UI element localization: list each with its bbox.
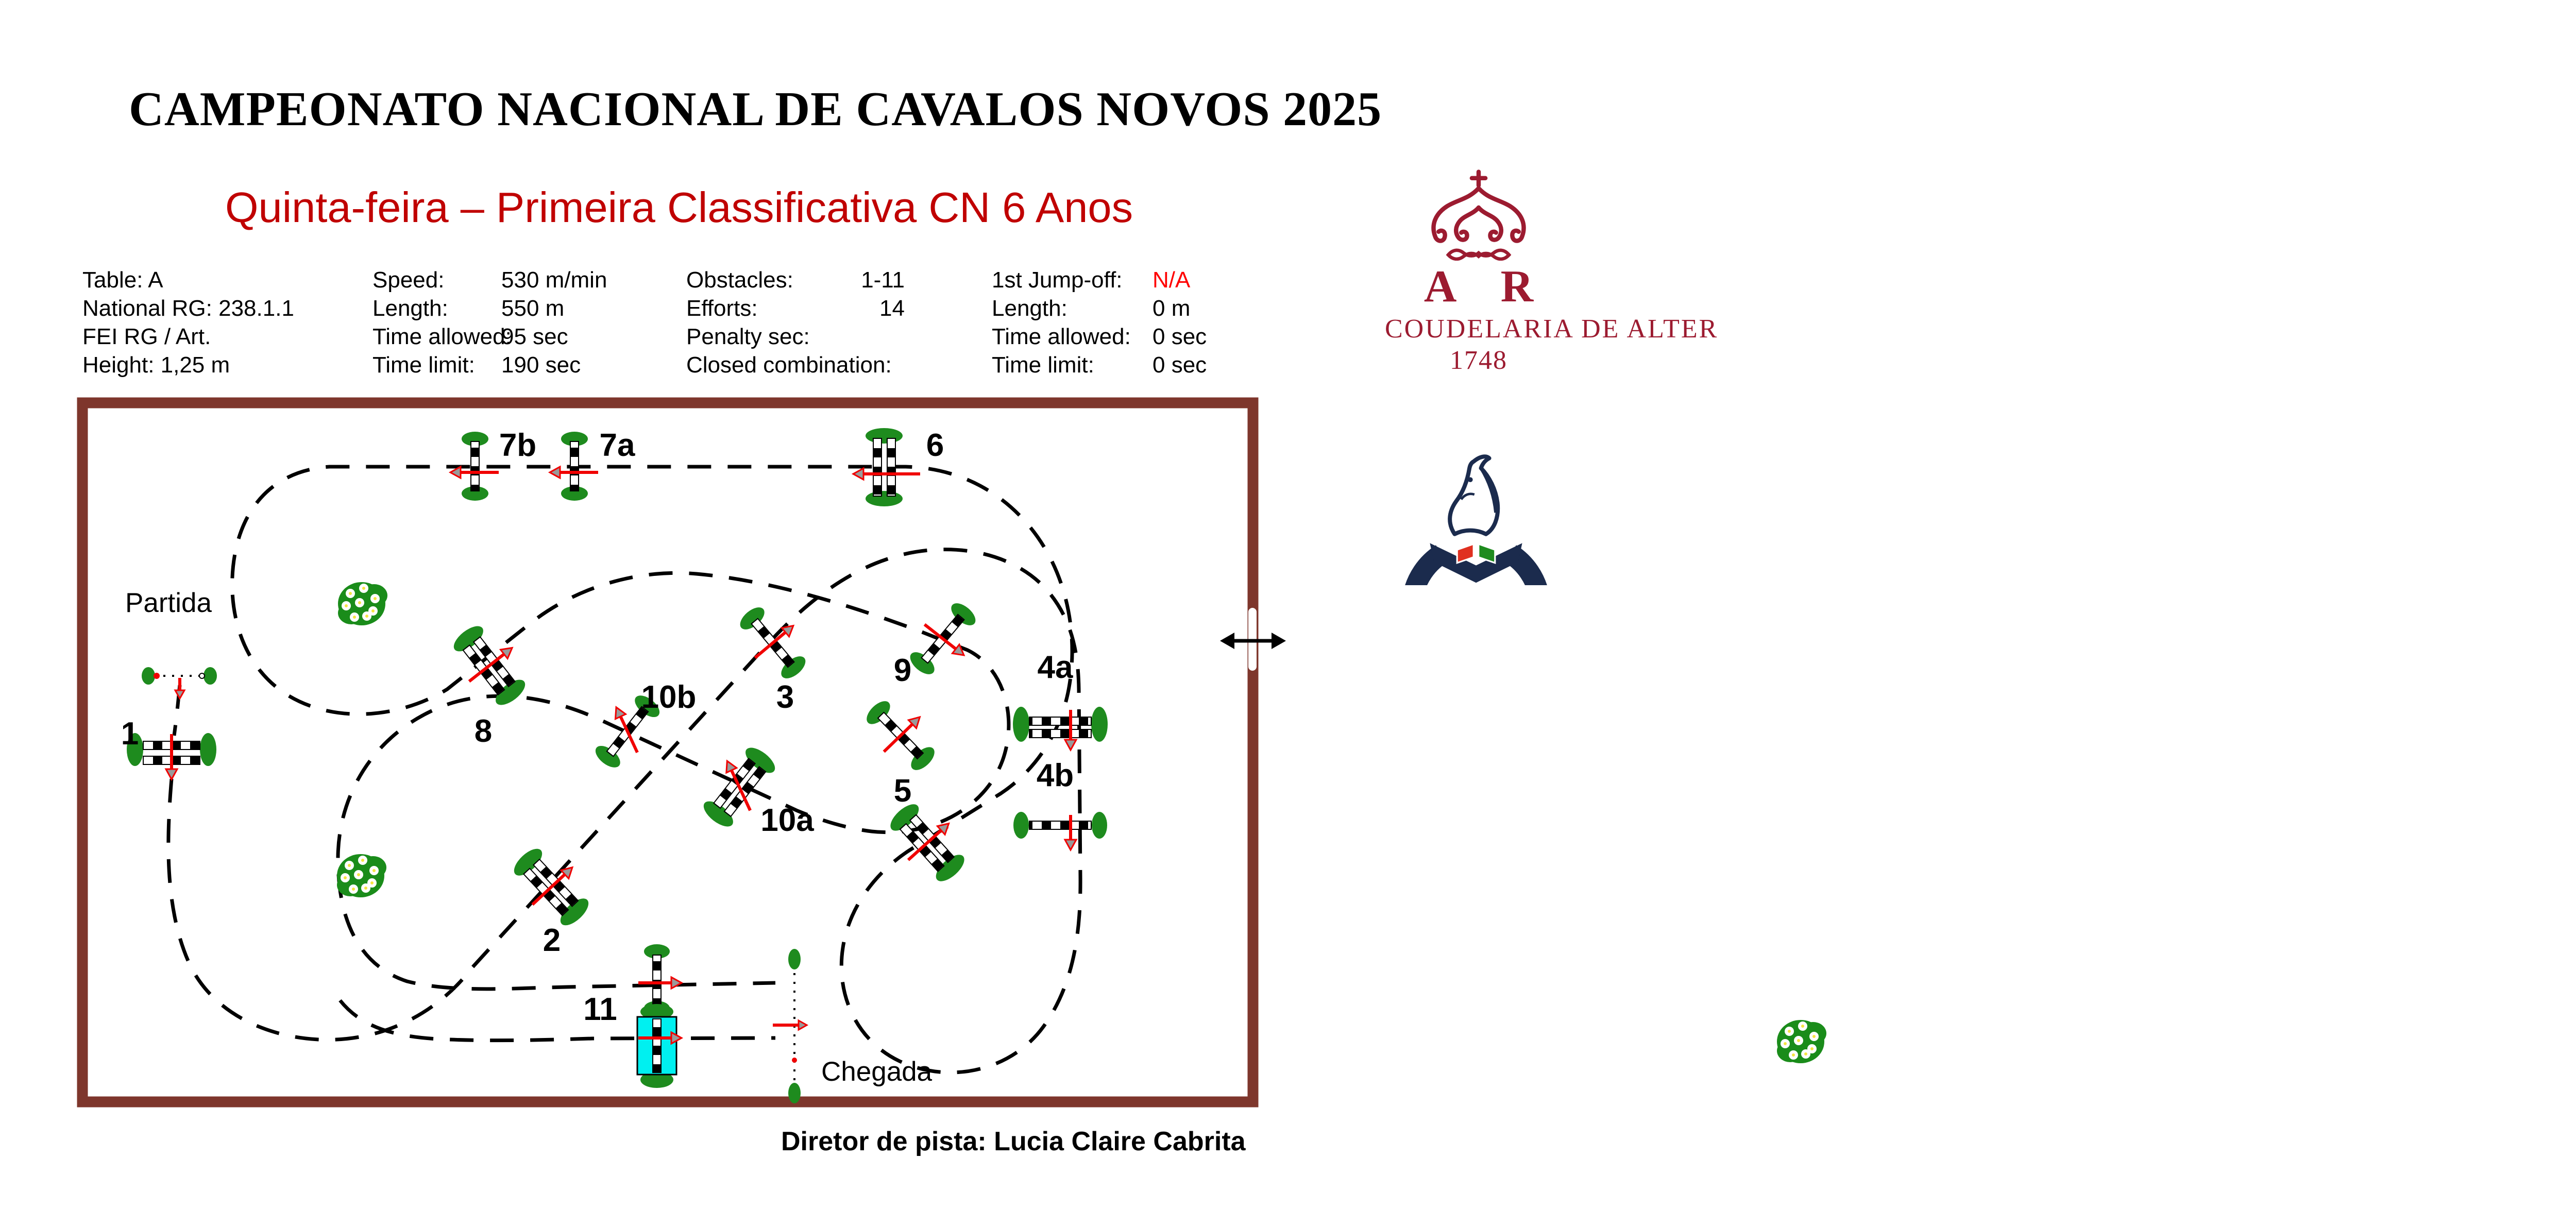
obstacle-3-label: 3 <box>776 679 794 715</box>
water-element <box>637 1004 682 1088</box>
obstacle-4a <box>1013 707 1108 750</box>
obstacle-11-label: 11 <box>583 992 617 1027</box>
obstacle-7a <box>550 432 598 501</box>
obstacle-10a-label: 10a <box>760 803 814 838</box>
flower-bed <box>1777 1020 1826 1063</box>
finish-line <box>773 949 807 1103</box>
obstacle-11 <box>637 944 682 1088</box>
obstacle-7b-label: 7b <box>499 428 536 463</box>
obstacle-3 <box>736 603 809 683</box>
obstacle-4b <box>1013 812 1107 850</box>
start-line <box>142 667 217 699</box>
start-arrow-icon <box>175 678 184 699</box>
start-label: Partida <box>125 588 212 618</box>
obstacle-8-label: 8 <box>474 713 492 749</box>
flower-bed <box>338 582 387 625</box>
obstacle-4b-label: 4b <box>1037 758 1074 793</box>
obstacle-6-label: 6 <box>926 428 944 463</box>
obstacle-7a-label: 7a <box>600 428 635 463</box>
obstacle-2-label: 2 <box>543 923 561 958</box>
finish-label: Chegada <box>821 1057 933 1087</box>
course-director: Diretor de pista: Lucia Claire Cabrita <box>781 1126 1246 1157</box>
obstacle-10b-label: 10b <box>641 679 697 715</box>
course-design-sheet: CAMPEONATO NACIONAL DE CAVALOS NOVOS 202… <box>0 0 2576 1226</box>
obstacle-9 <box>906 599 979 678</box>
finish-arrow-icon <box>773 1020 807 1030</box>
obstacle-1 <box>127 733 216 779</box>
flower-bed <box>337 854 386 897</box>
track-path-finish <box>340 1000 775 1041</box>
obstacle-4a-label: 4a <box>1038 650 1073 685</box>
track-path-main <box>168 467 1080 1072</box>
obstacle-1-label: 1 <box>121 716 139 752</box>
obstacle-2 <box>510 844 593 930</box>
course-diagram: Partida Chegada <box>0 0 2576 1226</box>
obstacle-5-label: 5 <box>894 773 911 809</box>
obstacle-9-label: 9 <box>894 653 911 688</box>
obstacle-5-vertical <box>862 697 938 774</box>
